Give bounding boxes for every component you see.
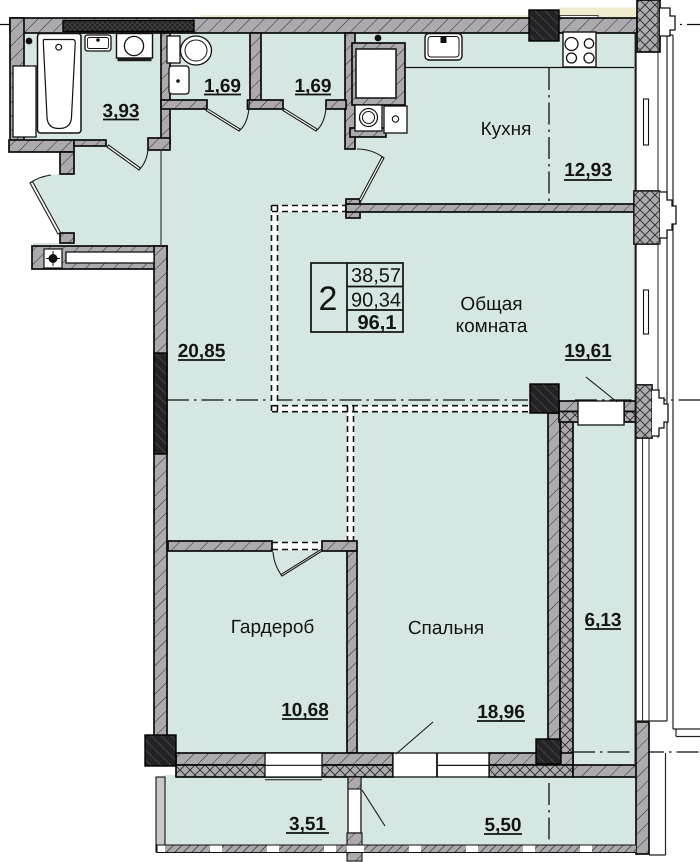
svg-text:комната: комната — [456, 316, 528, 337]
svg-text:2: 2 — [319, 280, 338, 318]
svg-text:12,93: 12,93 — [564, 160, 612, 181]
svg-text:5,50: 5,50 — [485, 815, 522, 836]
svg-text:38,57: 38,57 — [351, 265, 401, 287]
svg-text:Гардероб: Гардероб — [231, 617, 315, 638]
svg-text:90,34: 90,34 — [351, 290, 401, 312]
svg-text:19,61: 19,61 — [564, 341, 612, 362]
svg-text:18,96: 18,96 — [477, 702, 525, 723]
svg-text:20,85: 20,85 — [178, 341, 226, 362]
svg-text:96,1: 96,1 — [358, 312, 397, 334]
svg-text:Общая: Общая — [460, 294, 522, 315]
svg-text:6,13: 6,13 — [585, 610, 622, 631]
svg-text:Спальня: Спальня — [408, 618, 484, 639]
svg-text:Кухня: Кухня — [481, 119, 532, 140]
svg-text:3,51: 3,51 — [289, 814, 326, 835]
svg-text:10,68: 10,68 — [281, 700, 329, 721]
